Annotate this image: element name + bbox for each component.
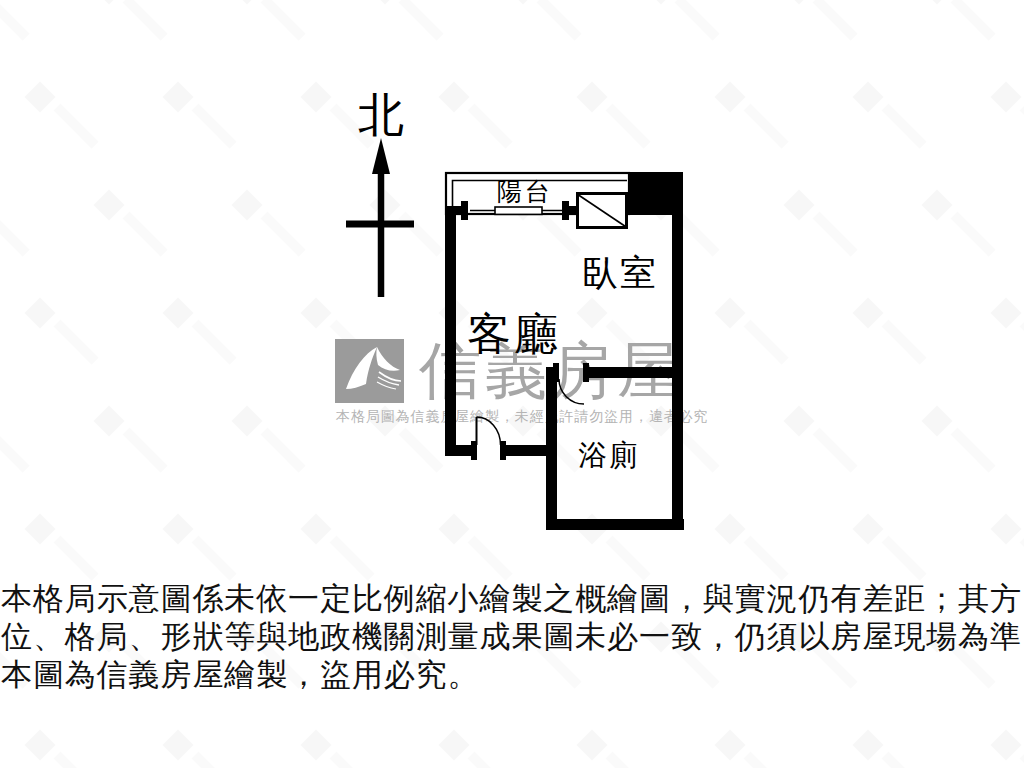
balcony-outline: [446, 173, 629, 214]
watermark-tile: [581, 726, 681, 768]
watermark-tile: [305, 294, 405, 364]
watermark-tile: [995, 78, 1024, 148]
door-jamb: [461, 201, 468, 220]
watermark-tile: [374, 186, 474, 256]
door-jamb: [471, 441, 477, 460]
watermark-tile: [167, 294, 267, 364]
watermark-tile: [857, 510, 957, 580]
watermark-tile: [857, 78, 957, 148]
wall-left: [445, 206, 456, 456]
disclaimer-line-3: 本圖為信義房屋繪製，盜用必究。: [1, 656, 1023, 694]
watermark-tile: [581, 78, 681, 148]
window-symbol: [578, 194, 627, 228]
watermark-tile: [719, 726, 819, 768]
watermark-tile: [98, 0, 198, 40]
living-room-label: 客廳: [467, 310, 561, 359]
bathroom-label: 浴廁: [578, 439, 640, 471]
watermark-tile: [719, 510, 819, 580]
balcony-inner-line: [453, 181, 628, 207]
watermark-tile: [719, 78, 819, 148]
watermark-tile: [512, 0, 612, 40]
watermark-tile: [512, 186, 612, 256]
watermark-tile: [167, 510, 267, 580]
sliding-door-panel: [495, 207, 542, 214]
watermark-tile: [443, 294, 543, 364]
watermark-tile: [443, 510, 543, 580]
bedroom-label: 臥室: [582, 253, 658, 293]
watermark-tile: [167, 78, 267, 148]
watermark-tile: [995, 294, 1024, 364]
north-indicator: 北: [346, 90, 414, 297]
north-arrow-head: [372, 138, 390, 174]
watermark-tile: [29, 78, 129, 148]
watermark-tile: [581, 510, 681, 580]
wall-top-mid-segment: [566, 206, 578, 215]
watermark-tile: [995, 726, 1024, 768]
wall-top-right-segment: [624, 206, 672, 215]
window-diagonal: [579, 195, 626, 227]
watermark-tile: [305, 726, 405, 768]
watermark-tile: [374, 0, 474, 40]
watermark-tile: [236, 402, 336, 472]
watermark-tile: [98, 402, 198, 472]
door-jamb: [500, 441, 506, 460]
watermark-tile: [29, 294, 129, 364]
watermark-tile: [995, 510, 1024, 580]
watermark-brand-text: 信義房屋: [419, 338, 683, 404]
watermark-tile: [236, 186, 336, 256]
door-jamb: [562, 201, 569, 220]
watermark-tile: [719, 294, 819, 364]
wall-right: [672, 206, 683, 530]
watermark-tile: [650, 0, 750, 40]
watermark-tile: [29, 726, 129, 768]
watermark-tile: [581, 294, 681, 364]
watermark-tile: [0, 402, 60, 472]
door-jamb: [583, 363, 589, 382]
bathroom-door: [553, 363, 589, 404]
watermark-tile: [857, 294, 957, 364]
structural-column: [628, 172, 683, 213]
watermark-tile: [305, 510, 405, 580]
room-labels: 陽台 臥室 客廳 浴廁: [467, 178, 658, 471]
window-box: [578, 194, 627, 228]
disclaimer-line-2: 位、格局、形狀等與地政機關測量成果圖未必一致，仍須以房屋現場為準。: [1, 618, 1023, 656]
sinyi-logo-icon: [335, 339, 404, 403]
wall-top-left-segment: [445, 206, 466, 215]
watermark-tile: [305, 78, 405, 148]
watermark-tile: [29, 510, 129, 580]
door-jamb: [553, 363, 559, 382]
wall-bedroom-bathroom-divider: [589, 367, 672, 378]
balcony-outer-line: [446, 173, 629, 214]
wall-bottom-mid-segment: [506, 445, 557, 456]
watermark-tile: [98, 186, 198, 256]
watermark-tile: [788, 0, 888, 40]
north-label: 北: [358, 90, 404, 141]
disclaimer-line-1: 本格局示意圖係未依一定比例縮小繪製之概繪圖，與實況仍有差距；其方: [1, 580, 1023, 618]
watermark-tile: [236, 0, 336, 40]
watermark-tile: [374, 402, 474, 472]
watermark-tile: [650, 402, 750, 472]
wall-bottom-left-segment: [445, 445, 471, 456]
watermark-tile: [443, 78, 543, 148]
wall-bathroom-bottom: [546, 519, 684, 530]
floorplan-page: 信義房屋 本格局圖為信義房屋繪製，未經允許請勿盜用，違者必究 北: [0, 0, 1024, 768]
watermark-tile: [926, 0, 1024, 40]
watermark-tile: [788, 402, 888, 472]
watermark-tile: [512, 402, 612, 472]
entry-door-arc: [477, 417, 501, 445]
watermark-tile: [167, 726, 267, 768]
watermark-tile: [443, 726, 543, 768]
watermark-tile: [0, 186, 60, 256]
balcony-sliding-door: [461, 201, 569, 220]
watermark-tile: [926, 186, 1024, 256]
watermark-tile: [650, 186, 750, 256]
watermark-tile: [788, 186, 888, 256]
bathroom-door-arc: [559, 379, 584, 404]
watermark-tile: [0, 0, 60, 40]
balcony-label: 陽台: [497, 178, 553, 205]
watermark-notice-text: 本格局圖為信義房屋繪製，未經允許請勿盜用，違者必究: [336, 408, 709, 426]
watermark-tile: [926, 402, 1024, 472]
wall-bathroom-left: [546, 367, 557, 530]
entry-door: [471, 417, 506, 460]
disclaimer-text: 本格局示意圖係未依一定比例縮小繪製之概繪圖，與實況仍有差距；其方 位、格局、形狀…: [1, 580, 1023, 693]
watermark-tile: [857, 726, 957, 768]
walls: [445, 206, 684, 530]
sinyi-logo-graphic: [335, 339, 404, 403]
